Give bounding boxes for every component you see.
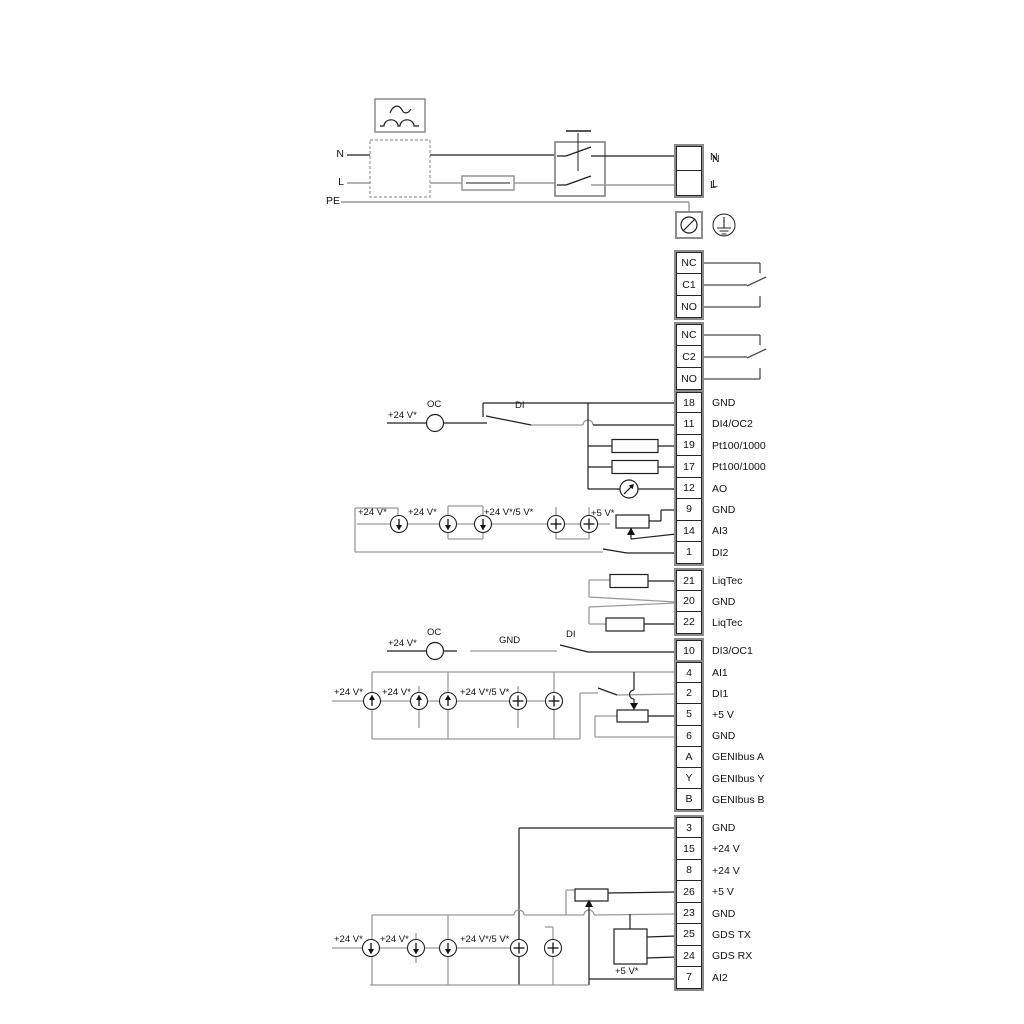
di2-switch [603,549,676,553]
terminal-number: 1 [686,546,692,558]
terminal-number: NC [681,257,696,269]
terminal-number: 19 [683,439,695,451]
terminal-row-label-AO: AO [712,482,727,496]
current-source-icon [391,516,408,533]
terminal-cell-NC: NC [676,324,702,346]
oc2-v24-label: +24 V* [388,410,417,421]
terminal-row-label-N: N [712,152,720,166]
terminal-cell-17: 17 [676,456,702,477]
wiring-diagram-page: NCC1NO NCC2NO 18111917129141 212022 10 4… [0,0,1024,1024]
ai1-v24-label-2: +24 V* [382,687,411,698]
terminal-row-label-Pt100-1000: Pt100/1000 [712,460,766,474]
di3-switch [560,645,676,652]
earth-icon [713,214,735,236]
terminal-number: 17 [683,461,695,473]
terminal-cell-14: 14 [676,521,702,542]
ai3-v24-label-2: +24 V* [408,507,437,518]
terminal-number: NO [681,301,697,313]
terminal-number: A [685,751,692,763]
terminal-row-label-GENIbus-B: GENIbus B [712,793,765,807]
current-source-icon [364,693,381,710]
voltage-source-icon [510,693,527,710]
ai2-v24-label-2: +24 V* [380,934,409,945]
liqtec-sensor-1 [610,575,648,588]
ai3-5v-label: +5 V* [591,508,615,519]
oc1-v24-label: +24 V* [388,638,417,649]
terminal-cell-A: A [676,747,702,768]
terminal-row-label-GENIbus-Y: GENIbus Y [712,772,764,786]
ai2-gds-options [332,828,676,985]
terminal-cell-4: 4 [676,662,702,683]
terminal-cell-22: 22 [676,612,702,633]
terminal-cell-21: 21 [676,570,702,591]
current-source-icon [408,940,425,957]
oc1-di-label: DI [566,629,576,640]
terminal-cell-8: 8 [676,860,702,881]
terminal-row-label-DI3-OC1: DI3/OC1 [712,644,753,658]
terminal-number: C1 [682,279,695,291]
terminal-number: 3 [686,822,692,834]
terminal-number: 6 [686,730,692,742]
terminal-row-label-AI2: AI2 [712,971,728,985]
relay1-terminal-block: NCC1NO [674,250,704,320]
io-terminal-block-2: 4256AYB [674,660,704,812]
gds-5v-label: +5 V* [615,966,639,977]
di1-switch [598,688,617,695]
filter-box [370,140,430,197]
terminal-number: 10 [683,645,695,657]
terminal-row-label-LiqTec: LiqTec [712,574,742,588]
wiper-arrow-down [630,703,638,710]
terminal-row-label-+24-V: +24 V [712,864,740,878]
terminal-cell-2: 2 [676,683,702,704]
terminal-row-label-GND: GND [712,396,735,410]
liqtec-terminal-block: 212022 [674,568,704,636]
terminal-number: 15 [683,843,695,855]
terminal-row-label-DI2: DI2 [712,546,728,560]
main-switch-box [555,142,605,196]
terminal-cell-26: 26 [676,881,702,902]
terminal-number: 7 [686,971,692,983]
terminal-row-label-Pt100-1000: Pt100/1000 [712,439,766,453]
ai1-v24-label-1: +24 V* [334,687,363,698]
terminal-cell-10: 10 [676,640,702,662]
ai3-v24-label-1: +24 V* [358,507,387,518]
terminal-row-label-AI1: AI1 [712,666,728,680]
terminal-number: NO [681,373,697,385]
pt100-resistor-2 [612,461,658,474]
ai1-v24-5v-label: +24 V*/5 V* [460,687,509,698]
terminal-row-label-+24-V: +24 V [712,842,740,856]
terminal-row-label-GND: GND [712,503,735,517]
voltage-source-icon [548,516,565,533]
terminal-cell-Y: Y [676,768,702,789]
terminal-number: Y [685,772,692,784]
pt100-resistor-1 [612,440,658,453]
terminal-row-label-AI3: AI3 [712,524,728,538]
terminal-number: 9 [686,503,692,515]
terminal-number: 25 [683,928,695,940]
mains-label-n: N [326,148,344,161]
terminal-number: 18 [683,397,695,409]
di4-pt100-ao-options [387,403,676,498]
gds-sensor-box [614,929,647,964]
ai1-potentiometer [617,710,648,722]
ai1-di1-options [332,672,676,739]
liqtec-options [589,575,676,632]
oc1-circle [427,643,444,660]
terminal-cell-NO: NO [676,368,702,390]
terminal-cell-15: 15 [676,838,702,859]
terminal-cell-C1: C1 [676,274,702,296]
pe-wire [341,202,689,212]
terminal-cell-7: 7 [676,967,702,988]
voltage-source-icon [511,940,528,957]
terminal-cell-1: 1 [676,542,702,563]
mains-label-l: L [326,176,344,189]
voltage-source-icon [546,693,563,710]
terminal-number: 5 [686,708,692,720]
terminal-number: C2 [682,351,695,363]
terminal-row-label-LiqTec: LiqTec [712,616,742,630]
terminal-cell-9: 9 [676,499,702,520]
terminal-number: 20 [683,595,695,607]
terminal-number: 12 [683,482,695,494]
terminal-number: 23 [683,907,695,919]
terminal-row-label-GENIbus-A: GENIbus A [712,750,764,764]
terminal-cell-11: 11 [676,413,702,434]
terminal-number: 24 [683,950,695,962]
terminal-cell-5: 5 [676,704,702,725]
di4-switch [483,403,676,425]
io-terminal-block-3: 3158262325247 [674,815,704,991]
power-terminal-block [674,144,704,198]
di3-option [387,643,676,660]
terminal-cell-N [676,146,702,171]
terminal-number: 21 [683,575,695,587]
ai3-v24-5v-label: +24 V*/5 V* [484,507,533,518]
relay2-contact [702,335,760,379]
current-source-icon [440,693,457,710]
terminal-number: 8 [686,864,692,876]
terminal-row-label-DI1: DI1 [712,687,728,701]
terminal-cell-23: 23 [676,903,702,924]
io-terminal-block-1: 18111917129141 [674,390,704,566]
terminal-number: 22 [683,616,695,628]
liqtec-sensor-2 [606,618,644,631]
terminal-row-label-GND: GND [712,595,735,609]
terminal-number: NC [681,329,696,341]
terminal-row-label-GND: GND [712,907,735,921]
terminal-cell-B: B [676,789,702,810]
terminal-number: 11 [684,418,695,430]
sine-wave-icon [390,106,411,113]
terminal-cell-NC: NC [676,252,702,274]
terminal-cell-25: 25 [676,924,702,945]
terminal-number: 2 [686,687,692,699]
relay2-terminal-block: NCC2NO [674,322,704,392]
ai2-potentiometer [575,889,608,901]
terminal-number: 4 [686,667,692,679]
terminal-cell-12: 12 [676,478,702,499]
terminal-row-label-DI4-OC2: DI4/OC2 [712,417,753,431]
terminal-cell-3: 3 [676,817,702,838]
terminal-cell-NO: NO [676,296,702,318]
current-source-icon [411,693,428,710]
wiper-arrow-up [627,528,635,536]
oc2-oc-label: OC [427,399,441,410]
oc2-di-label: DI [515,400,525,411]
relay1-contact [702,263,760,307]
terminal-cell-20: 20 [676,591,702,612]
terminal-row-label-GND: GND [712,729,735,743]
ai2-v24-5v-label: +24 V*/5 V* [460,934,509,945]
ai2-v24-label-1: +24 V* [334,934,363,945]
terminal-cell-24: 24 [676,946,702,967]
relay-contacts [702,263,766,379]
voltage-source-icon [545,940,562,957]
terminal-number: 14 [683,525,695,537]
current-source-icon [440,516,457,533]
oc1-gnd-label: GND [499,635,520,646]
mains-label-pe: PE [316,195,340,208]
terminal-cell-19: 19 [676,435,702,456]
terminal-row-label-L: L [712,177,718,191]
rectified-wave-icon [380,120,419,126]
oc2-circle [427,415,444,432]
terminal-cell-6: 6 [676,726,702,747]
terminal-number: B [685,793,692,805]
current-source-icon [440,940,457,957]
oc1-oc-label: OC [427,627,441,638]
terminal-row-label-+5-V: +5 V [712,708,734,722]
terminal-cell-18: 18 [676,392,702,413]
ai3-potentiometer [616,515,649,528]
current-source-icon [363,940,380,957]
terminal-row-label-GDS-RX: GDS RX [712,949,752,963]
terminal-row-label-+5-V: +5 V [712,885,734,899]
terminal-cell-C2: C2 [676,346,702,368]
terminal-row-label-GDS-TX: GDS TX [712,928,751,942]
current-source-icon [475,516,492,533]
terminal-cell-L [676,171,702,196]
ac-symbol-box [375,99,425,132]
terminal-row-label-GND: GND [712,821,735,835]
terminal-number: 26 [683,886,695,898]
